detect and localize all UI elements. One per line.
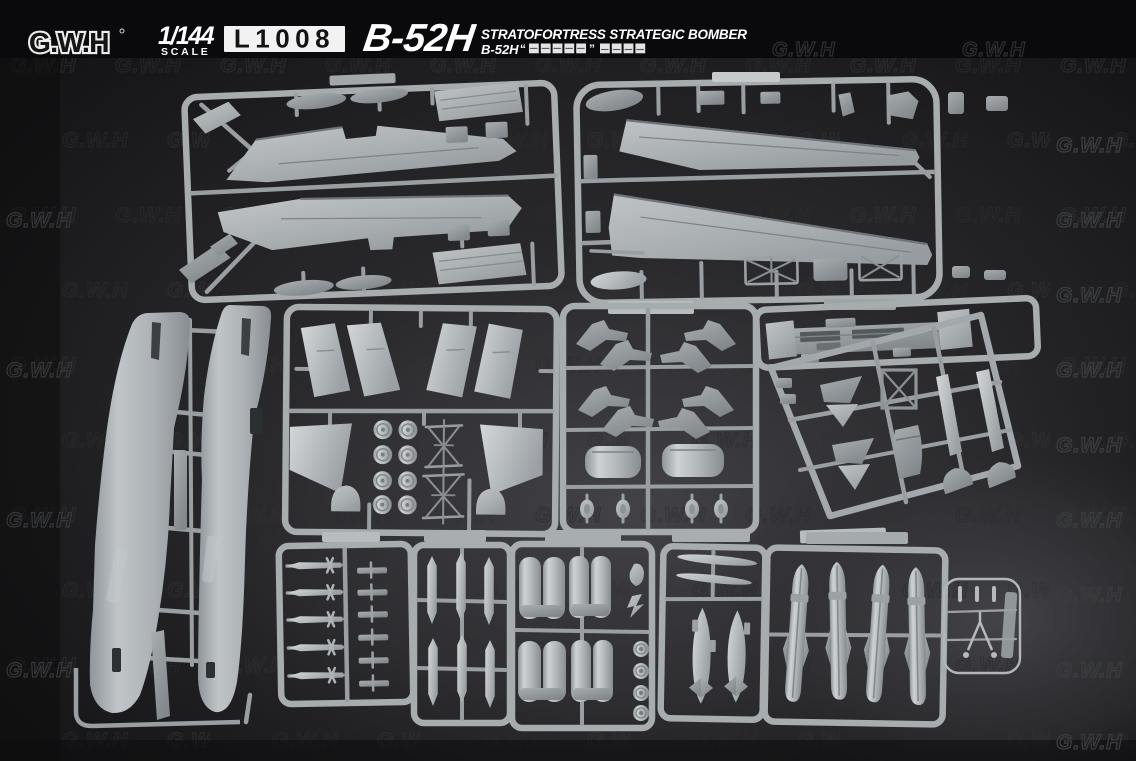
svg-text:G.W.H: G.W.H [1056,134,1122,157]
svg-text:“: “ [520,42,526,56]
svg-text:G.W.H: G.W.H [1056,209,1122,232]
svg-text:G.W.H: G.W.H [1056,584,1122,607]
svg-text:G.W.H: G.W.H [1056,659,1122,682]
svg-text:G.W.H: G.W.H [6,659,72,682]
svg-text:B-52H: B-52H [361,17,478,60]
svg-text:”: ” [589,42,595,56]
svg-text:G.W.H: G.W.H [6,509,72,532]
svg-text:G.W.H: G.W.H [6,209,72,232]
svg-text:G.W.H: G.W.H [1056,509,1122,532]
svg-text:G.W.H: G.W.H [1056,434,1122,457]
svg-text:L1008: L1008 [234,24,335,54]
svg-text:SCALE: SCALE [161,46,211,58]
svg-text:G.W.H: G.W.H [29,27,109,58]
svg-text:B-52H: B-52H [481,42,519,57]
svg-text:G.W.H: G.W.H [1056,359,1122,382]
svg-text:G.W.H: G.W.H [1056,284,1122,307]
svg-text:G.W.H: G.W.H [962,39,1026,61]
svg-text:STRATOFORTRESS STRATEGIC BOM: STRATOFORTRESS STRATEGIC BOMBER [481,27,747,42]
svg-text:G.W.H: G.W.H [6,359,72,382]
svg-text:G.W.H: G.W.H [772,39,836,61]
svg-text:G.W.H: G.W.H [1056,731,1122,754]
